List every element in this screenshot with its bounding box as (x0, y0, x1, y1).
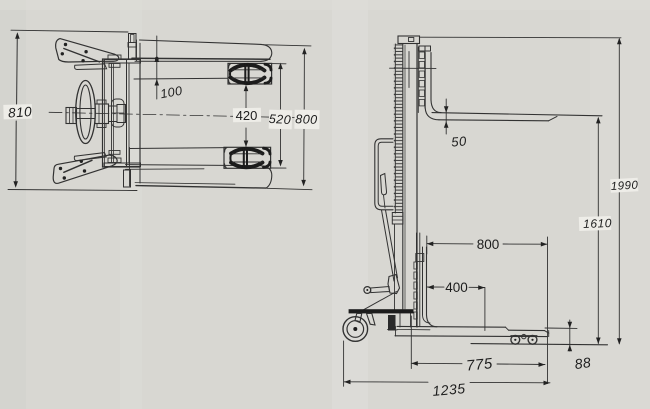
svg-text:1235: 1235 (432, 380, 466, 399)
svg-text:400: 400 (445, 280, 468, 295)
svg-text:88: 88 (574, 354, 593, 372)
svg-text:520: 520 (268, 112, 291, 127)
svg-text:1610: 1610 (583, 216, 612, 231)
svg-text:50: 50 (451, 133, 468, 149)
svg-text:800: 800 (477, 237, 500, 252)
svg-text:420: 420 (236, 108, 258, 123)
svg-text:1990: 1990 (610, 180, 638, 193)
svg-text:810: 810 (8, 104, 33, 121)
svg-text:775: 775 (465, 355, 493, 375)
svg-text:800: 800 (295, 112, 318, 127)
